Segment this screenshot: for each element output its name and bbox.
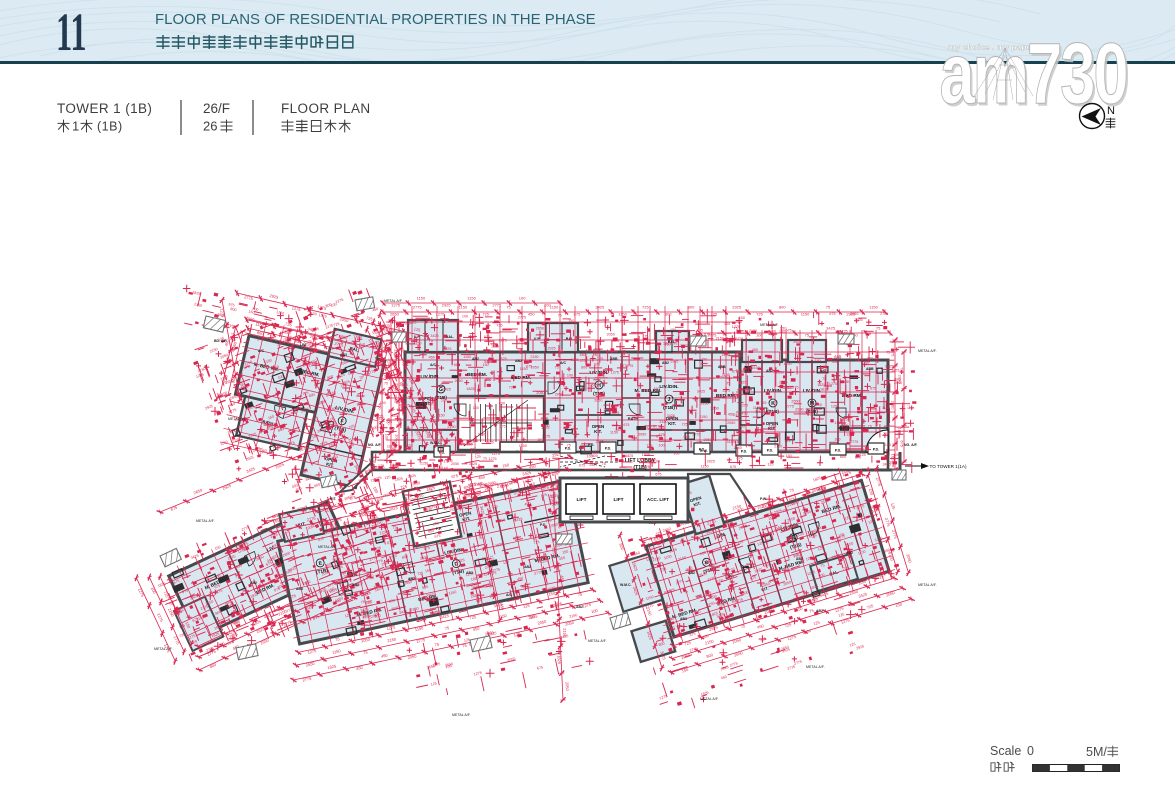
- svg-text:675: 675: [574, 311, 581, 316]
- svg-text:2050: 2050: [850, 312, 858, 316]
- svg-text:3425: 3425: [595, 305, 605, 310]
- svg-text:2050: 2050: [531, 365, 539, 369]
- svg-text:125: 125: [767, 463, 773, 467]
- svg-text:450: 450: [664, 343, 670, 347]
- svg-text:1825: 1825: [625, 454, 633, 458]
- svg-text:KIT.: KIT.: [330, 497, 337, 501]
- svg-text:2650: 2650: [445, 662, 454, 668]
- svg-text:3425: 3425: [529, 615, 538, 621]
- svg-text:1275: 1275: [291, 305, 302, 312]
- svg-text:100: 100: [384, 433, 389, 440]
- svg-text:1275: 1275: [156, 612, 165, 623]
- svg-text:AB2: AB2: [524, 565, 531, 569]
- svg-text:3425: 3425: [408, 474, 417, 479]
- svg-text:AB2: AB2: [662, 361, 669, 365]
- svg-text:AB2: AB2: [688, 571, 695, 575]
- svg-text:2150: 2150: [387, 636, 398, 643]
- svg-text:150: 150: [380, 401, 386, 405]
- svg-text:150: 150: [815, 359, 821, 363]
- svg-text:100: 100: [671, 342, 677, 346]
- svg-text:P.D.: P.D.: [835, 449, 842, 453]
- svg-text:A/C: A/C: [258, 349, 265, 353]
- svg-text:2775: 2775: [692, 433, 700, 437]
- svg-text:675: 675: [829, 312, 835, 316]
- svg-text:450: 450: [380, 652, 388, 658]
- svg-text:125: 125: [854, 358, 860, 362]
- svg-text:3425: 3425: [736, 369, 744, 373]
- svg-text:725: 725: [644, 465, 650, 469]
- svg-text:W.M.C.: W.M.C.: [620, 583, 631, 587]
- svg-text:AB2: AB2: [576, 605, 583, 609]
- svg-text:75: 75: [444, 625, 450, 631]
- svg-text:METAL A/F.: METAL A/F.: [760, 323, 779, 327]
- svg-text:2150: 2150: [659, 420, 667, 424]
- svg-text:75: 75: [599, 357, 603, 361]
- svg-text:2150: 2150: [704, 638, 715, 646]
- svg-text:2050: 2050: [607, 332, 615, 336]
- svg-text:2775: 2775: [787, 665, 796, 671]
- svg-text:3425: 3425: [246, 466, 257, 474]
- svg-text:800: 800: [840, 455, 846, 459]
- svg-text:675: 675: [454, 363, 460, 367]
- svg-text:2925: 2925: [205, 404, 214, 411]
- svg-text:800: 800: [867, 357, 873, 361]
- svg-text:METAL A/F.: METAL A/F.: [588, 639, 607, 643]
- svg-text:2925: 2925: [275, 461, 286, 469]
- svg-text:W.M.C.: W.M.C.: [430, 441, 441, 445]
- svg-text:ABB: ABB: [866, 367, 874, 371]
- svg-text:2150: 2150: [699, 415, 707, 419]
- svg-text:125: 125: [885, 443, 891, 447]
- svg-text:1275: 1275: [498, 339, 506, 343]
- svg-text:1150: 1150: [784, 362, 792, 366]
- svg-text:P.D.: P.D.: [588, 443, 594, 447]
- svg-text:800: 800: [592, 454, 598, 458]
- svg-text:2150: 2150: [436, 414, 444, 418]
- svg-text:75: 75: [558, 313, 562, 317]
- svg-text:100: 100: [441, 398, 447, 402]
- svg-text:2925: 2925: [732, 305, 742, 310]
- svg-text:100: 100: [834, 437, 840, 441]
- svg-text:2150: 2150: [700, 402, 708, 406]
- svg-text:1825: 1825: [498, 357, 506, 361]
- svg-text:725: 725: [842, 329, 848, 333]
- svg-text:2050: 2050: [537, 619, 548, 626]
- svg-text:1825: 1825: [611, 339, 619, 343]
- svg-text:1825: 1825: [611, 411, 619, 415]
- svg-text:150: 150: [579, 353, 585, 357]
- svg-text:1825: 1825: [642, 453, 650, 457]
- svg-text:1150: 1150: [618, 311, 627, 316]
- svg-text:3425: 3425: [667, 414, 675, 418]
- svg-text:2925: 2925: [707, 460, 715, 464]
- svg-text:75: 75: [822, 377, 826, 381]
- svg-text:75: 75: [789, 487, 795, 493]
- svg-text:1150: 1150: [869, 305, 878, 310]
- svg-text:125: 125: [430, 681, 437, 686]
- svg-text:100: 100: [358, 513, 365, 518]
- svg-text:2650: 2650: [426, 664, 435, 670]
- svg-text:450: 450: [427, 435, 433, 439]
- svg-text:3425: 3425: [399, 383, 407, 387]
- svg-text:ACC. LIFT: ACC. LIFT: [647, 497, 669, 502]
- svg-text:450: 450: [720, 675, 727, 681]
- svg-text:75: 75: [826, 305, 831, 310]
- svg-text:ABB: ABB: [718, 365, 726, 369]
- svg-text:125: 125: [579, 358, 585, 362]
- svg-text:100: 100: [395, 434, 400, 441]
- svg-text:2150: 2150: [569, 613, 578, 619]
- svg-text:2050: 2050: [594, 399, 602, 403]
- svg-text:TO TOWER 1(1A): TO TOWER 1(1A): [929, 464, 966, 469]
- svg-text:2150: 2150: [774, 444, 782, 448]
- svg-text:METAL A/F.: METAL A/F.: [700, 697, 719, 701]
- svg-text:A/C: A/C: [560, 361, 567, 365]
- svg-text:150: 150: [483, 601, 490, 606]
- svg-text:800: 800: [665, 311, 672, 316]
- svg-text:R.W.: R.W.: [700, 449, 708, 453]
- svg-text:150: 150: [214, 545, 221, 551]
- svg-text:100: 100: [658, 444, 664, 448]
- svg-text:725: 725: [760, 401, 766, 405]
- svg-text:1150: 1150: [417, 296, 426, 301]
- svg-text:75: 75: [740, 623, 746, 629]
- svg-text:150: 150: [701, 357, 707, 361]
- svg-text:P.D.: P.D.: [873, 448, 880, 452]
- svg-text:1275: 1275: [492, 452, 500, 456]
- svg-text:2150: 2150: [554, 601, 559, 611]
- svg-text:METAL A/F.: METAL A/F.: [918, 583, 937, 587]
- svg-text:2150: 2150: [209, 347, 218, 354]
- svg-text:125: 125: [370, 460, 376, 464]
- svg-text:450: 450: [653, 387, 659, 391]
- svg-text:150: 150: [568, 319, 574, 323]
- svg-text:2050: 2050: [507, 657, 516, 663]
- svg-text:800: 800: [779, 305, 786, 310]
- svg-text:2650: 2650: [795, 408, 803, 412]
- svg-text:F.P.: F.P.: [436, 527, 442, 531]
- svg-text:1825: 1825: [491, 344, 499, 348]
- svg-text:J: J: [668, 397, 671, 403]
- svg-text:150: 150: [248, 309, 255, 314]
- svg-text:2650: 2650: [814, 403, 822, 407]
- svg-text:1825: 1825: [839, 417, 847, 421]
- svg-text:125: 125: [831, 405, 837, 409]
- svg-text:450: 450: [844, 380, 850, 384]
- svg-text:75: 75: [506, 305, 511, 310]
- svg-text:2150: 2150: [227, 323, 236, 329]
- svg-text:3425: 3425: [402, 404, 410, 408]
- svg-text:450: 450: [485, 378, 491, 382]
- svg-text:AB3: AB3: [340, 353, 347, 357]
- svg-text:2775: 2775: [786, 404, 794, 408]
- svg-text:725: 725: [866, 603, 875, 610]
- svg-text:800: 800: [894, 378, 900, 382]
- svg-text:450: 450: [742, 412, 748, 416]
- svg-text:725: 725: [642, 305, 649, 310]
- svg-text:2050: 2050: [638, 433, 646, 437]
- svg-text:675: 675: [592, 383, 598, 387]
- svg-text:800: 800: [706, 652, 715, 659]
- svg-text:2775: 2775: [891, 529, 899, 540]
- svg-text:2150: 2150: [722, 353, 730, 357]
- svg-text:800: 800: [544, 302, 551, 307]
- svg-text:2925: 2925: [738, 380, 746, 384]
- svg-text:800: 800: [209, 662, 218, 670]
- svg-text:150: 150: [779, 330, 785, 334]
- svg-text:3425: 3425: [560, 634, 569, 640]
- svg-text:2775: 2775: [875, 477, 883, 488]
- svg-text:3425: 3425: [858, 591, 869, 599]
- svg-text:2650: 2650: [390, 311, 400, 316]
- svg-text:2925: 2925: [269, 293, 280, 300]
- svg-text:METAL A/F.: METAL A/F.: [918, 349, 937, 353]
- svg-text:75: 75: [429, 339, 433, 343]
- svg-text:1275: 1275: [542, 435, 550, 439]
- svg-text:125: 125: [835, 355, 841, 359]
- svg-text:AB3: AB3: [466, 571, 473, 575]
- svg-text:1275: 1275: [436, 311, 446, 316]
- svg-text:2150: 2150: [530, 355, 538, 359]
- svg-text:1275: 1275: [541, 426, 549, 430]
- svg-text:3425: 3425: [697, 390, 705, 394]
- svg-text:2650: 2650: [891, 401, 896, 411]
- svg-text:100: 100: [567, 374, 573, 378]
- svg-text:675: 675: [579, 464, 585, 468]
- svg-text:100: 100: [150, 586, 158, 595]
- svg-text:KIT.: KIT.: [668, 421, 676, 426]
- svg-text:P.D.: P.D.: [540, 523, 546, 527]
- svg-text:1275: 1275: [363, 495, 372, 500]
- svg-text:150: 150: [739, 316, 745, 320]
- svg-text:LIFT: LIFT: [613, 497, 623, 503]
- svg-text:450: 450: [683, 435, 689, 439]
- svg-text:125: 125: [838, 612, 845, 618]
- svg-text:125: 125: [696, 440, 702, 444]
- svg-text:725: 725: [333, 322, 340, 328]
- svg-text:2925: 2925: [222, 483, 233, 491]
- svg-text:METAL A/F.: METAL A/F.: [154, 647, 173, 651]
- svg-text:675: 675: [697, 329, 703, 333]
- svg-text:150: 150: [473, 406, 479, 410]
- svg-text:2650: 2650: [640, 426, 648, 430]
- svg-text:3425: 3425: [469, 462, 477, 466]
- svg-text:2775: 2775: [880, 312, 888, 316]
- svg-text:2775: 2775: [244, 294, 255, 301]
- svg-text:1150: 1150: [392, 414, 400, 418]
- svg-text:2150: 2150: [194, 302, 203, 308]
- svg-text:2150: 2150: [483, 348, 491, 352]
- svg-text:75: 75: [906, 405, 911, 410]
- svg-text:2050: 2050: [905, 553, 913, 564]
- svg-text:675: 675: [623, 423, 629, 427]
- svg-text:2775: 2775: [492, 302, 502, 307]
- svg-text:675: 675: [170, 505, 179, 512]
- svg-text:AB2: AB2: [408, 577, 415, 581]
- svg-text:675: 675: [842, 424, 848, 428]
- svg-text:1275: 1275: [732, 325, 740, 329]
- svg-text:METAL A/F.: METAL A/F.: [452, 713, 471, 717]
- svg-text:1275: 1275: [727, 339, 735, 343]
- svg-text:1150: 1150: [459, 305, 468, 310]
- svg-text:1825: 1825: [327, 663, 338, 670]
- svg-text:METAL A/F.: METAL A/F.: [196, 519, 215, 523]
- svg-text:2775: 2775: [468, 468, 477, 473]
- svg-text:2050: 2050: [451, 462, 459, 466]
- svg-text:2925: 2925: [470, 439, 478, 443]
- svg-text:100: 100: [782, 351, 788, 355]
- svg-text:2650: 2650: [193, 487, 204, 495]
- svg-text:METAL A/F.: METAL A/F.: [228, 417, 247, 421]
- svg-text:1150: 1150: [701, 465, 709, 469]
- svg-text:800: 800: [392, 465, 398, 469]
- svg-text:800: 800: [371, 425, 378, 431]
- svg-text:450: 450: [528, 311, 535, 316]
- svg-text:1825: 1825: [395, 477, 404, 482]
- svg-text:75: 75: [384, 382, 388, 386]
- svg-text:A/C: A/C: [820, 369, 827, 373]
- svg-text:1825: 1825: [889, 460, 897, 464]
- svg-text:1275: 1275: [740, 403, 748, 407]
- svg-text:1275: 1275: [473, 671, 482, 677]
- svg-text:75: 75: [602, 462, 606, 466]
- svg-text:725: 725: [471, 376, 477, 380]
- svg-text:75: 75: [876, 326, 881, 331]
- svg-text:2050: 2050: [339, 316, 350, 323]
- svg-text:1275: 1275: [829, 382, 837, 386]
- svg-text:1150: 1150: [550, 305, 559, 310]
- svg-text:2050: 2050: [565, 682, 570, 692]
- svg-text:800: 800: [230, 307, 237, 312]
- svg-text:BD. A/F.: BD. A/F.: [214, 339, 227, 343]
- svg-text:AB3: AB3: [680, 617, 687, 621]
- svg-text:P.D.: P.D.: [605, 447, 612, 451]
- svg-text:1825: 1825: [570, 358, 578, 362]
- svg-text:1275: 1275: [318, 313, 327, 319]
- svg-text:1150: 1150: [801, 311, 810, 316]
- svg-text:3425: 3425: [443, 387, 451, 391]
- svg-text:2925: 2925: [245, 455, 254, 462]
- svg-text:450: 450: [728, 413, 734, 417]
- svg-text:1150: 1150: [519, 444, 527, 448]
- svg-text:100: 100: [756, 332, 763, 337]
- svg-text:1150: 1150: [768, 425, 776, 429]
- svg-text:100: 100: [590, 371, 596, 375]
- svg-text:675: 675: [228, 349, 235, 355]
- svg-text:100: 100: [724, 322, 730, 326]
- svg-text:75: 75: [886, 350, 890, 354]
- svg-text:675: 675: [870, 386, 876, 390]
- svg-text:75: 75: [483, 456, 488, 461]
- svg-text:2050: 2050: [555, 393, 563, 397]
- svg-text:100: 100: [462, 315, 468, 319]
- svg-text:725: 725: [755, 410, 761, 414]
- svg-text:800: 800: [618, 543, 625, 552]
- svg-text:METAL A/F.: METAL A/F.: [384, 299, 403, 303]
- svg-text:3425: 3425: [307, 327, 316, 333]
- svg-text:1275: 1275: [488, 457, 496, 461]
- svg-text:450: 450: [228, 402, 235, 408]
- svg-text:800: 800: [408, 467, 415, 472]
- svg-text:450: 450: [429, 356, 435, 360]
- svg-text:800: 800: [894, 453, 900, 457]
- svg-text:2775: 2775: [884, 517, 892, 528]
- svg-text:800: 800: [688, 305, 695, 310]
- svg-text:1275: 1275: [722, 389, 730, 393]
- svg-text:100: 100: [673, 451, 679, 455]
- svg-text:150: 150: [670, 328, 676, 332]
- svg-text:2050: 2050: [704, 438, 712, 442]
- svg-text:1275: 1275: [137, 587, 146, 598]
- svg-text:1150: 1150: [727, 440, 735, 444]
- svg-text:2050: 2050: [727, 421, 735, 425]
- svg-text:NG. A/F.: NG. A/F.: [368, 443, 382, 447]
- svg-text:1825: 1825: [192, 290, 201, 296]
- svg-text:725: 725: [496, 323, 502, 327]
- svg-text:1825: 1825: [556, 655, 561, 665]
- svg-text:75: 75: [629, 364, 633, 368]
- svg-text:150: 150: [895, 601, 904, 608]
- svg-text:125: 125: [384, 475, 391, 480]
- svg-text:725: 725: [370, 478, 377, 484]
- svg-text:100: 100: [372, 486, 380, 495]
- svg-text:675: 675: [500, 425, 506, 429]
- svg-text:A/C: A/C: [506, 593, 513, 597]
- svg-text:675: 675: [786, 328, 792, 332]
- svg-text:2925: 2925: [670, 360, 678, 364]
- svg-text:5M/: 5M/: [1086, 745, 1107, 759]
- svg-text:2925: 2925: [596, 440, 604, 444]
- svg-text:150: 150: [415, 342, 421, 346]
- svg-text:METAL A/F.: METAL A/F.: [318, 545, 337, 549]
- svg-text:725: 725: [366, 315, 374, 322]
- svg-text:1825: 1825: [820, 387, 828, 391]
- svg-text:1275: 1275: [787, 634, 798, 642]
- svg-text:2775: 2775: [241, 525, 250, 532]
- svg-text:800: 800: [849, 394, 855, 398]
- svg-text:800: 800: [314, 483, 321, 489]
- svg-text:AB2: AB2: [352, 583, 359, 587]
- svg-text:125: 125: [813, 619, 822, 626]
- svg-text:1825: 1825: [382, 493, 391, 498]
- svg-text:2650: 2650: [536, 327, 544, 331]
- svg-text:METAL A/F.: METAL A/F.: [806, 665, 825, 669]
- svg-text:1825: 1825: [881, 390, 889, 394]
- svg-text:150: 150: [735, 440, 741, 444]
- svg-text:AB2: AB2: [796, 557, 803, 561]
- svg-text:725: 725: [386, 420, 392, 424]
- svg-text:2650: 2650: [733, 650, 744, 658]
- svg-text:725: 725: [509, 385, 515, 389]
- svg-text:1825: 1825: [485, 440, 493, 444]
- svg-text:AB3: AB3: [296, 587, 303, 591]
- svg-text:675: 675: [689, 632, 696, 638]
- svg-text:ABB: ABB: [610, 357, 618, 361]
- svg-text:1825: 1825: [812, 476, 821, 482]
- svg-text:2650: 2650: [791, 400, 799, 404]
- svg-text:AB2: AB2: [846, 551, 853, 555]
- svg-text:2150: 2150: [420, 461, 428, 465]
- svg-text:2650: 2650: [229, 394, 238, 401]
- svg-text:2050: 2050: [732, 637, 743, 645]
- svg-text:2150: 2150: [447, 425, 455, 429]
- svg-text:2775: 2775: [518, 316, 526, 320]
- svg-text:(T1B): (T1B): [663, 405, 675, 410]
- svg-text:LIFT: LIFT: [576, 497, 586, 503]
- svg-text:725: 725: [756, 311, 763, 316]
- svg-text:800: 800: [739, 424, 745, 428]
- svg-text:2925: 2925: [547, 347, 555, 351]
